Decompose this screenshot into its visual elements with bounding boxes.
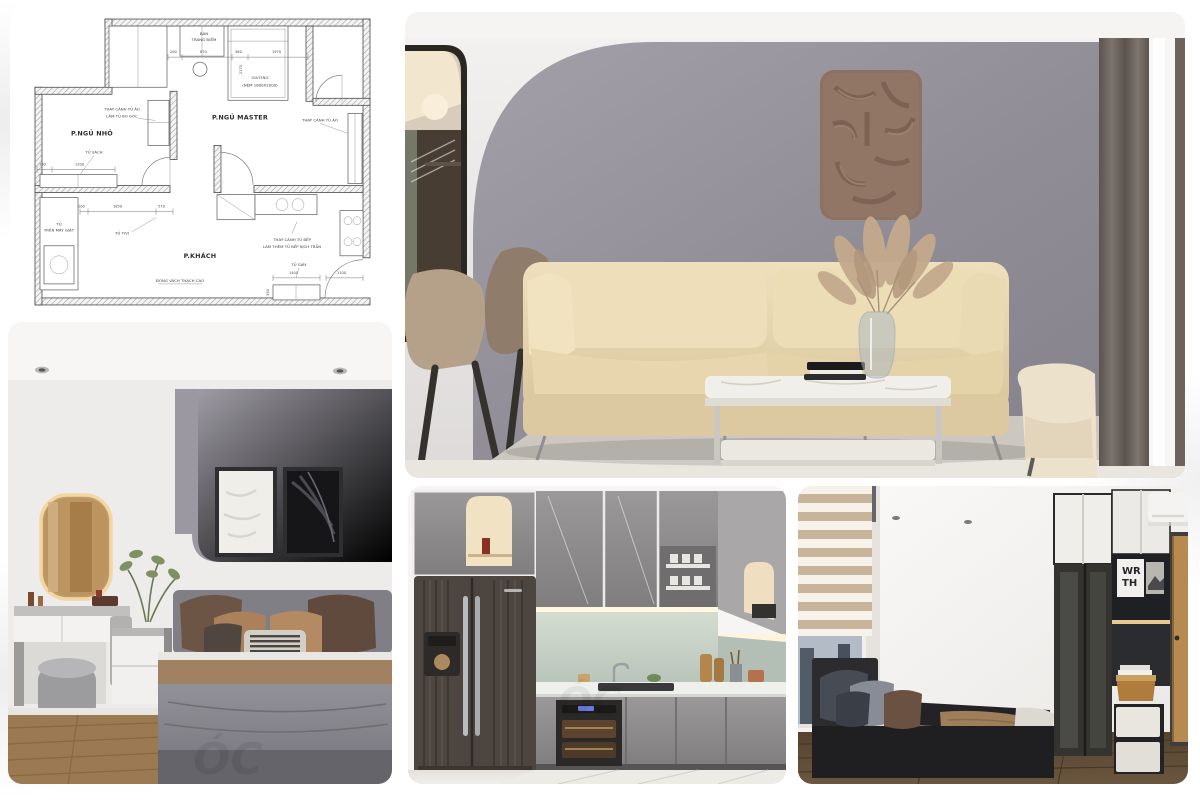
svg-text:THAY CÁNH TỦ ÁO: THAY CÁNH TỦ ÁO bbox=[301, 117, 338, 122]
curtains bbox=[1099, 38, 1185, 466]
svg-text:TỦ GIÀY: TỦ GIÀY bbox=[290, 262, 307, 267]
svg-text:TỦ: TỦ bbox=[55, 222, 61, 227]
artwork-white bbox=[215, 467, 277, 557]
svg-text:TỦ SÁCH: TỦ SÁCH bbox=[84, 149, 102, 154]
watermark: ÓC bbox=[193, 732, 263, 784]
svg-text:1200: 1200 bbox=[75, 163, 85, 167]
svg-text:GIƯỜNG: GIƯỜNG bbox=[252, 75, 269, 80]
svg-text:TRÊN MÁY GIẶT: TRÊN MÁY GIẶT bbox=[43, 228, 75, 233]
refrigerator bbox=[414, 576, 536, 778]
svg-text:1970: 1970 bbox=[272, 50, 282, 54]
marble-floor bbox=[408, 770, 786, 784]
drawers bbox=[1114, 704, 1164, 774]
svg-text:200: 200 bbox=[170, 50, 178, 54]
svg-text:ĐÓNG VÁCH THẠCH CAO: ĐÓNG VÁCH THẠCH CAO bbox=[156, 278, 204, 283]
svg-text:P.NGỦ MASTER: P.NGỦ MASTER bbox=[212, 111, 268, 121]
led-strip bbox=[1112, 620, 1170, 624]
floor-plan-image: 200 870 360 1970 2170 190 1200 200 1850 … bbox=[10, 5, 392, 318]
master-bedroom-photo: ÓC bbox=[8, 322, 392, 784]
svg-text:TRANG ĐIỂM: TRANG ĐIỂM bbox=[191, 37, 217, 42]
svg-text:190: 190 bbox=[39, 163, 47, 167]
svg-text:360: 360 bbox=[235, 50, 243, 54]
svg-text:1850: 1850 bbox=[113, 205, 123, 209]
svg-text:1100: 1100 bbox=[337, 271, 347, 275]
svg-text:200: 200 bbox=[78, 205, 86, 209]
svg-text:LÀM TỦ BO GÓC: LÀM TỦ BO GÓC bbox=[106, 113, 138, 118]
shelf-unit: WR TH bbox=[1112, 490, 1170, 774]
svg-text:P.KHÁCH: P.KHÁCH bbox=[184, 251, 217, 260]
living-room-photo bbox=[405, 12, 1185, 478]
svg-text:WR: WR bbox=[1122, 566, 1141, 577]
door bbox=[1170, 532, 1188, 746]
svg-text:THAY CÁNH TỦ BẾP: THAY CÁNH TỦ BẾP bbox=[272, 236, 311, 242]
svg-text:LÀM THÊM TỦ BẾP KỊCH TRẦN: LÀM THÊM TỦ BẾP KỊCH TRẦN bbox=[263, 243, 321, 249]
floor-plan-drawing: 200 870 360 1970 2170 190 1200 200 1850 … bbox=[10, 5, 392, 318]
books bbox=[804, 362, 866, 380]
watermark: ÓC bbox=[558, 678, 621, 726]
door-handle bbox=[1175, 636, 1180, 641]
glass-cabinet bbox=[660, 546, 716, 608]
kitchen-photo: ÓC bbox=[408, 486, 786, 784]
backsplash bbox=[536, 612, 718, 684]
svg-text:THAY CÁNH TỦ ÁO: THAY CÁNH TỦ ÁO bbox=[103, 106, 140, 111]
towels-box bbox=[1116, 665, 1156, 701]
svg-text:TỦ TIVI: TỦ TIVI bbox=[114, 231, 129, 236]
svg-text:TH: TH bbox=[1122, 578, 1137, 589]
small-bedroom-photo: WR TH bbox=[798, 486, 1188, 784]
svg-text:BÀN: BÀN bbox=[200, 31, 208, 36]
wall-art-relief bbox=[820, 70, 922, 220]
ac-unit bbox=[1148, 492, 1188, 526]
range-hood bbox=[752, 604, 776, 618]
artwork-black bbox=[283, 467, 343, 557]
armchair bbox=[1018, 363, 1097, 478]
wardrobe bbox=[1054, 494, 1112, 756]
svg-text:2170: 2170 bbox=[239, 64, 243, 74]
svg-text:P.NGỦ NHỎ: P.NGỦ NHỎ bbox=[71, 127, 113, 137]
ceiling bbox=[405, 12, 1185, 38]
poster-frame: WR TH bbox=[1117, 559, 1144, 597]
sofa bbox=[505, 262, 1045, 466]
fridge-logo bbox=[504, 589, 522, 592]
zebra-blinds bbox=[798, 486, 872, 636]
wood-floor bbox=[8, 708, 183, 784]
svg-text:350: 350 bbox=[266, 288, 270, 296]
svg-text:(NỆM 1800X2000): (NỆM 1800X2000) bbox=[242, 82, 278, 87]
vanity-mirror bbox=[41, 495, 111, 599]
svg-text:870: 870 bbox=[200, 50, 208, 54]
water-dispenser bbox=[424, 632, 460, 676]
svg-text:570: 570 bbox=[158, 205, 166, 209]
